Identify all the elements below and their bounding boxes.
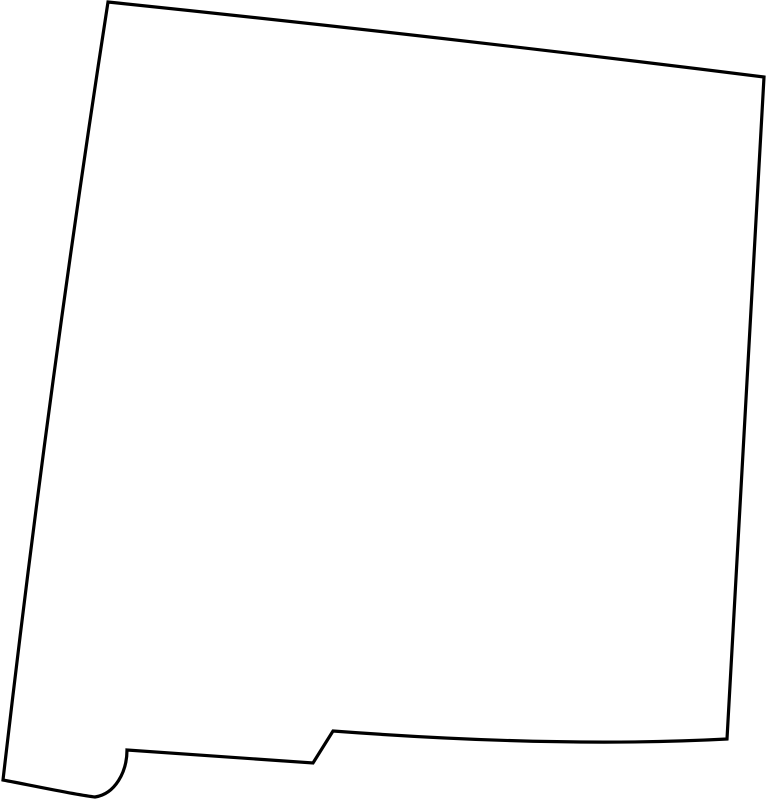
new-mexico-outline bbox=[3, 2, 764, 797]
map-canvas bbox=[0, 0, 769, 800]
state-outline-map bbox=[0, 0, 769, 800]
